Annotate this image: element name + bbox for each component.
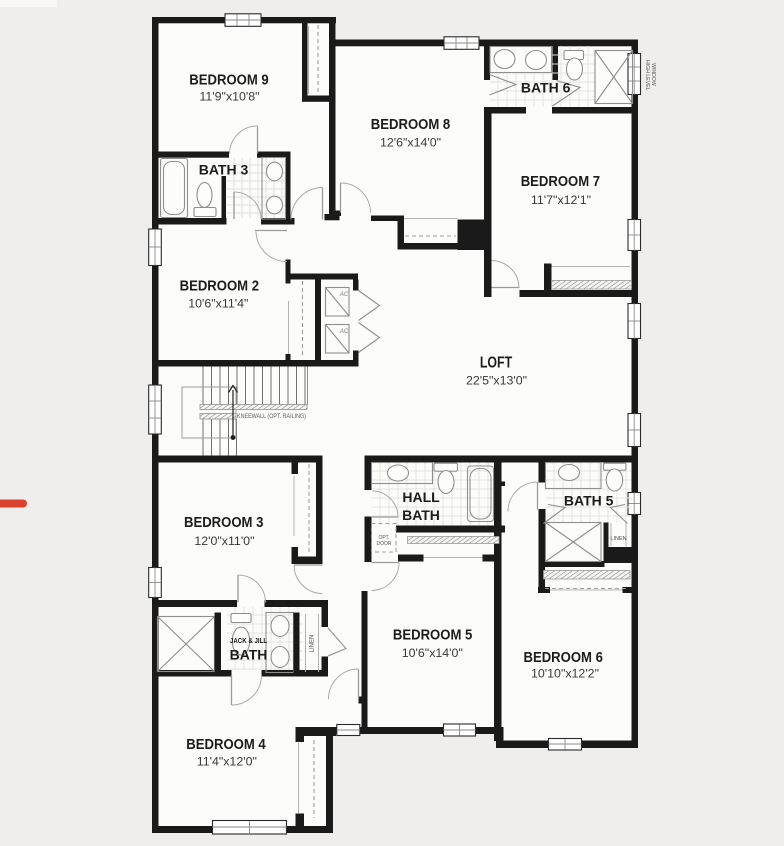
svg-text:BATH 3: BATH 3 [199,162,249,178]
svg-text:BATH 6: BATH 6 [521,80,571,96]
svg-text:11'7"x12'1": 11'7"x12'1" [531,193,591,207]
svg-text:KNEEWALL (OPT. RAILING): KNEEWALL (OPT. RAILING) [237,414,306,420]
svg-text:JACK & JILL: JACK & JILL [230,638,267,646]
svg-text:BEDROOM 2: BEDROOM 2 [180,277,260,294]
svg-text:BEDROOM 3: BEDROOM 3 [184,513,264,530]
svg-text:BEDROOM 6: BEDROOM 6 [524,648,604,665]
svg-text:WINDOW: WINDOW [650,63,656,86]
svg-text:22'5"x13'0": 22'5"x13'0" [466,374,527,388]
svg-text:LINEN: LINEN [310,635,316,653]
svg-text:10'6"x14'0": 10'6"x14'0" [402,646,463,660]
svg-text:BEDROOM 7: BEDROOM 7 [521,172,601,189]
svg-text:11'4"x12'0": 11'4"x12'0" [197,755,257,769]
svg-text:BEDROOM 9: BEDROOM 9 [189,71,269,88]
svg-text:11'9"x10'8": 11'9"x10'8" [199,89,259,103]
svg-text:AC: AC [339,329,349,335]
svg-text:BATH 5: BATH 5 [564,493,614,509]
svg-text:BEDROOM 8: BEDROOM 8 [371,115,451,132]
svg-text:BATH: BATH [230,647,268,663]
svg-text:10'10"x12'2": 10'10"x12'2" [531,667,599,681]
svg-text:LINEN: LINEN [610,536,626,542]
svg-text:LOFT: LOFT [480,353,513,371]
svg-text:HIGH LEVEL: HIGH LEVEL [644,60,650,91]
svg-text:BEDROOM 5: BEDROOM 5 [393,626,473,643]
svg-text:BATH: BATH [402,507,440,523]
svg-text:AC: AC [339,292,349,298]
svg-text:10'6"x11'4": 10'6"x11'4" [188,297,248,311]
svg-text:DOOR: DOOR [377,541,392,547]
svg-text:BEDROOM 4: BEDROOM 4 [186,735,266,752]
svg-text:12'0"x11'0": 12'0"x11'0" [194,534,254,548]
svg-text:HALL: HALL [402,489,440,505]
svg-text:12'6"x14'0": 12'6"x14'0" [380,136,441,150]
